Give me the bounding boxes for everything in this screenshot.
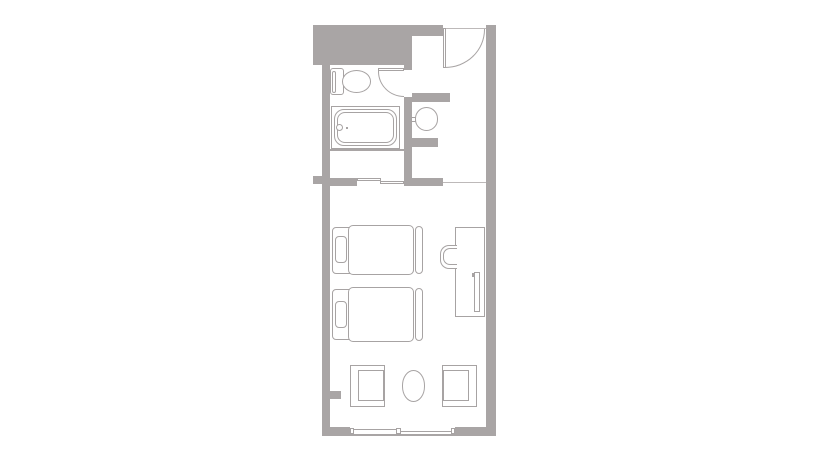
toilet-bowl <box>342 70 372 93</box>
coffee-table <box>402 370 426 402</box>
wall-top-band <box>313 25 443 36</box>
wall-basin-bottom <box>412 138 438 147</box>
wall-bath-stub <box>404 65 412 70</box>
washbasin-tap-icon <box>411 117 417 123</box>
entrance-door-swing-arc <box>445 29 486 68</box>
wall-bath-right <box>404 97 412 187</box>
window-rail-lower <box>400 431 451 432</box>
wall-column-bump <box>330 391 341 399</box>
wall-left-fin <box>313 176 322 184</box>
wall-bathroom-block <box>327 36 412 65</box>
wall-right <box>486 25 496 436</box>
bathroom-door-swing-arc <box>378 71 404 97</box>
bathtub-faucet-icon <box>336 124 343 131</box>
closet-sliding-door-left <box>357 178 381 181</box>
bathtub-drain-dot <box>346 127 348 130</box>
bed2-footboard <box>415 288 423 341</box>
tv <box>474 272 480 312</box>
armchair-left-seat <box>358 370 384 401</box>
floor-plan <box>0 0 820 455</box>
bed2-pillow <box>335 301 348 328</box>
wall-left <box>322 36 331 427</box>
window-tick-right <box>451 428 455 434</box>
threshold-line <box>443 182 486 183</box>
bed1-pillow <box>335 236 348 263</box>
wall-basin-top <box>412 93 450 102</box>
desk <box>455 227 485 317</box>
wall-bath-south-line <box>330 149 404 152</box>
bed1-footboard <box>415 226 423 275</box>
closet-sliding-door-right <box>380 181 405 184</box>
desk-chair-inner <box>443 248 457 265</box>
washbasin-bowl <box>415 107 439 131</box>
wall-interior-left <box>330 178 357 186</box>
wall-interior-right <box>412 178 443 186</box>
window-rail-upper <box>353 429 397 430</box>
bed1-duvet <box>348 225 414 275</box>
armchair-right-seat <box>443 370 469 401</box>
bed2-duvet <box>348 287 414 342</box>
tv-mount-tick <box>472 273 474 277</box>
toilet-tank-lid <box>332 71 337 94</box>
